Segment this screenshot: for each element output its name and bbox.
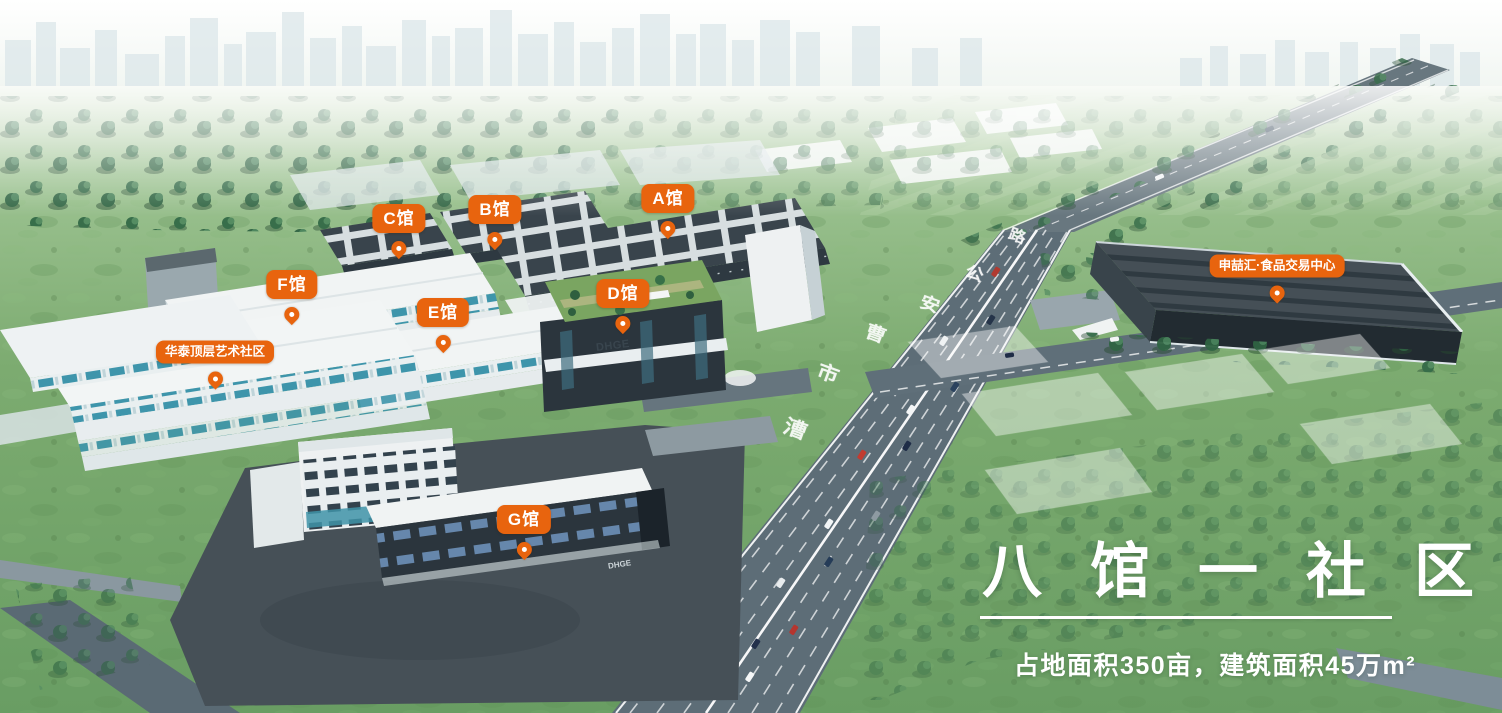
map-pin-icon [388,238,409,259]
roundabout-marking [724,370,756,386]
pin-label: D馆 [596,279,649,308]
corner-tower [745,225,825,332]
pin-hall-b[interactable]: B馆 [468,195,521,247]
pin-label: 华泰顶层艺术社区 [156,341,274,364]
pavement-shadow [260,580,580,660]
pin-hall-g[interactable]: G馆 [497,505,551,557]
map-pin-icon [484,229,505,250]
pin-huatai-art-community[interactable]: 华泰顶层艺术社区 [156,341,274,387]
pin-label: E馆 [417,298,469,327]
aerial-site-map: 路 公 安 曹 市 漕 DHGE DHGE A馆 B馆 C馆 D馆 E馆 F馆 … [0,0,1502,713]
map-pin-icon [281,304,302,325]
pin-hall-e[interactable]: E馆 [417,298,469,350]
pin-label: B馆 [468,195,521,224]
map-pin-icon [1266,282,1287,303]
headline-divider [980,616,1392,619]
map-pin-icon [513,539,534,560]
pin-label: G馆 [497,505,551,534]
map-pin-icon [204,368,225,389]
pin-label: 申喆汇·食品交易中心 [1210,255,1345,278]
map-pin-icon [612,313,633,334]
horizon-haze [0,86,1502,216]
pin-hall-d[interactable]: D馆 [596,279,649,331]
map-pin-icon [432,332,453,353]
map-pin-icon [657,218,678,239]
headline-title: 八馆一社区 [982,542,1502,602]
pin-label: C馆 [372,204,425,233]
pin-food-trade-center[interactable]: 申喆汇·食品交易中心 [1210,255,1345,301]
pin-hall-a[interactable]: A馆 [641,184,694,236]
pin-label: F馆 [266,270,317,299]
pin-label: A馆 [641,184,694,213]
area-stats-text: 占地面积350亩，建筑面积45万m² [1014,646,1416,682]
pin-hall-c[interactable]: C馆 [372,204,425,256]
pin-hall-f[interactable]: F馆 [266,270,317,322]
